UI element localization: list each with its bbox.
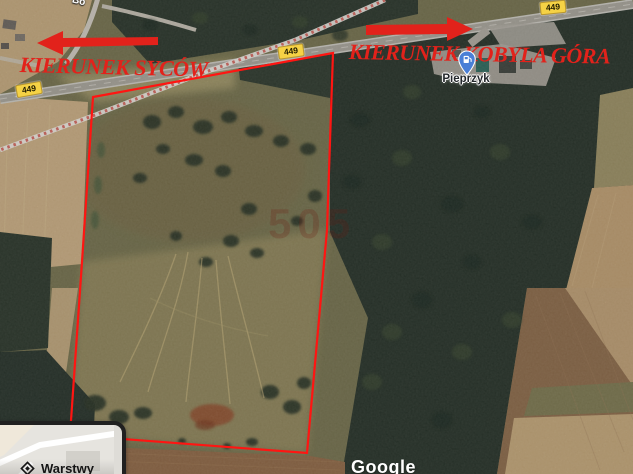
direction-label-kobyla-gora: KIERUNEK KOBYLA GÓRA [349,39,611,70]
layers-diamond-icon [20,461,35,474]
map-viewport[interactable]: KIERUNEK SYCÓW KIERUNEK KOBYLA GÓRA 449 … [0,0,633,474]
road-badge-449-right: 449 [539,0,566,15]
google-logo: Google [351,457,416,474]
poi-label[interactable]: Pieprzyk [434,73,498,85]
direction-label-sycow: KIERUNEK SYCÓW [19,52,208,83]
layers-label: Warstwy [41,461,94,474]
layers-control[interactable]: Warstwy [0,421,126,474]
faint-watermark: 505 [268,200,356,248]
